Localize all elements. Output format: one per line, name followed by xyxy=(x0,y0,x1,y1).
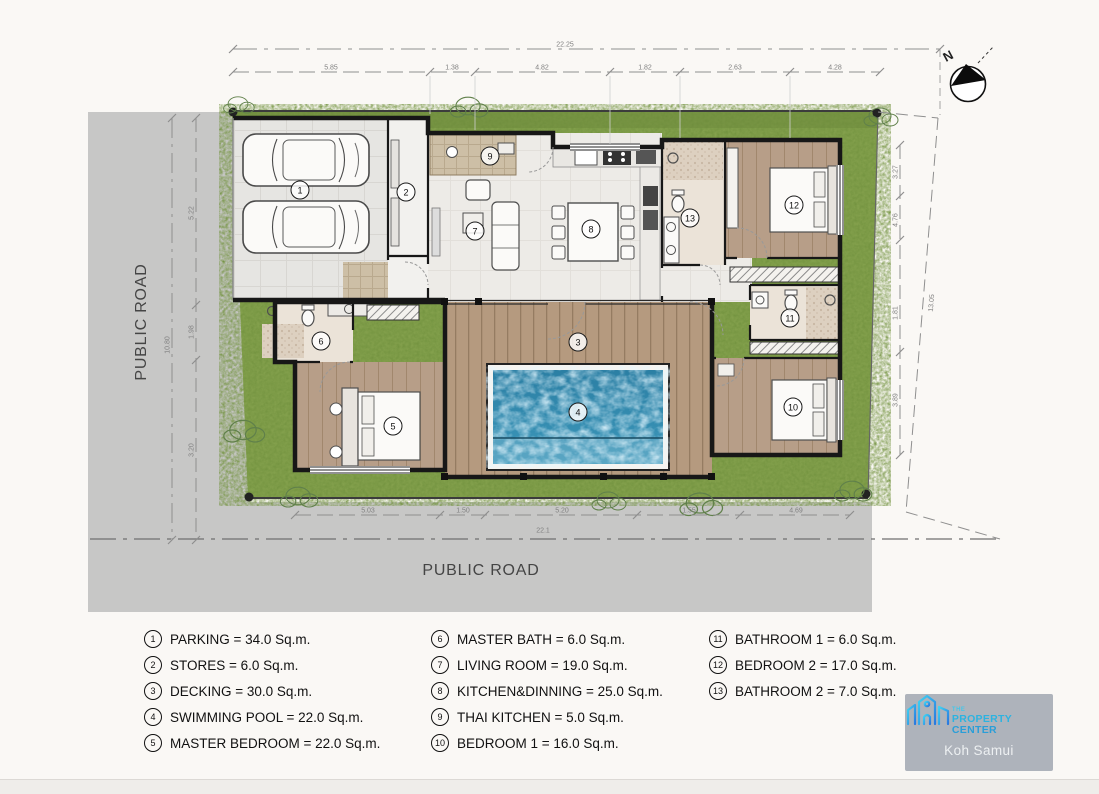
property-center-logo: THE PROPERTY CENTER Koh Samui xyxy=(905,694,1053,771)
dim-left-total: 10.80 xyxy=(165,336,172,354)
property-center-house-icon xyxy=(905,694,951,726)
legend-item: 1PARKING = 34.0 Sq.m. xyxy=(144,629,380,649)
room-marker-swimming-pool: 4 xyxy=(569,403,588,422)
legend-item: 10BEDROOM 1 = 16.0 Sq.m. xyxy=(431,733,663,753)
legend-label: BATHROOM 2 = 7.0 Sq.m. xyxy=(735,684,896,699)
legend-label: MASTER BATH = 6.0 Sq.m. xyxy=(457,632,625,647)
legend-number: 7 xyxy=(431,656,449,674)
room-marker-thai-kitchen: 9 xyxy=(481,147,500,166)
legend-number: 3 xyxy=(144,682,162,700)
dim-left-seg-3: 3.20 xyxy=(189,443,196,457)
legend-item: 2STORES = 6.0 Sq.m. xyxy=(144,655,380,675)
room-marker-living-room: 7 xyxy=(466,222,485,241)
room-marker-master-bedroom: 5 xyxy=(384,417,403,436)
room-marker-bedroom-1: 10 xyxy=(784,398,803,417)
legend-number: 8 xyxy=(431,682,449,700)
dim-top-seg-2: 1.38 xyxy=(445,65,459,72)
room-marker-decking: 3 xyxy=(569,333,588,352)
legend-item: 11BATHROOM 1 = 6.0 Sq.m. xyxy=(709,629,897,649)
room-marker-bedroom-2: 12 xyxy=(785,196,804,215)
legend-number: 4 xyxy=(144,708,162,726)
room-marker-master-bath: 6 xyxy=(312,332,331,351)
legend-number: 6 xyxy=(431,630,449,648)
logo-center: CENTER xyxy=(952,725,1012,736)
north-arrow xyxy=(951,46,995,102)
legend-number: 10 xyxy=(431,734,449,752)
legend-item: 7LIVING ROOM = 19.0 Sq.m. xyxy=(431,655,663,675)
legend-item: 3DECKING = 30.0 Sq.m. xyxy=(144,681,380,701)
legend-label: LIVING ROOM = 19.0 Sq.m. xyxy=(457,658,628,673)
legend-item: 4SWIMMING POOL = 22.0 Sq.m. xyxy=(144,707,380,727)
dim-right-total: 13.05 xyxy=(928,294,936,312)
legend-label: THAI KITCHEN = 5.0 Sq.m. xyxy=(457,710,624,725)
legend-item: 5MASTER BEDROOM = 22.0 Sq.m. xyxy=(144,733,380,753)
legend-label: BEDROOM 2 = 17.0 Sq.m. xyxy=(735,658,897,673)
dim-top-seg-5: 2.63 xyxy=(728,65,742,72)
legend-number: 2 xyxy=(144,656,162,674)
legend-item: 9THAI KITCHEN = 5.0 Sq.m. xyxy=(431,707,663,727)
legend-label: STORES = 6.0 Sq.m. xyxy=(170,658,298,673)
legend-item: 13BATHROOM 2 = 7.0 Sq.m. xyxy=(709,681,897,701)
bottom-divider xyxy=(0,779,1099,794)
room-marker-bathroom-1: 11 xyxy=(781,309,800,328)
dim-bottom-seg-4: 1.55 xyxy=(682,508,696,515)
legend-label: PARKING = 34.0 Sq.m. xyxy=(170,632,310,647)
dim-bottom-total: 22.1 xyxy=(536,528,550,535)
legend-column-3: 11BATHROOM 1 = 6.0 Sq.m. 12BEDROOM 2 = 1… xyxy=(709,629,897,701)
site-plan-page: PUBLIC ROAD PUBLIC ROAD N 22.25 5.85 1.3… xyxy=(0,0,1099,794)
legend-column-1: 1PARKING = 34.0 Sq.m. 2STORES = 6.0 Sq.m… xyxy=(144,629,380,753)
dim-bottom-seg-2: 1.50 xyxy=(456,508,470,515)
public-road-label-left: PUBLIC ROAD xyxy=(133,263,151,380)
dim-right-seg-2: 4.76 xyxy=(893,213,900,227)
legend-label: MASTER BEDROOM = 22.0 Sq.m. xyxy=(170,736,380,751)
dim-right-seg-1: 3.27 xyxy=(893,165,900,179)
legend-number: 12 xyxy=(709,656,727,674)
logo-property: PROPERTY xyxy=(952,714,1012,725)
dim-top-seg-1: 5.85 xyxy=(324,65,338,72)
legend-label: SWIMMING POOL = 22.0 Sq.m. xyxy=(170,710,363,725)
legend-number: 1 xyxy=(144,630,162,648)
dim-bottom-seg-5: 4.69 xyxy=(789,508,803,515)
dim-right-seg-4: 3.89 xyxy=(893,393,900,407)
legend-column-2: 6MASTER BATH = 6.0 Sq.m. 7LIVING ROOM = … xyxy=(431,629,663,753)
room-marker-parking: 1 xyxy=(291,181,310,200)
legend-label: BEDROOM 1 = 16.0 Sq.m. xyxy=(457,736,619,751)
legend-item: 8KITCHEN&DINNING = 25.0 Sq.m. xyxy=(431,681,663,701)
dim-top-seg-6: 4.28 xyxy=(828,65,842,72)
legend-number: 13 xyxy=(709,682,727,700)
legend-item: 12BEDROOM 2 = 17.0 Sq.m. xyxy=(709,655,897,675)
legend-label: DECKING = 30.0 Sq.m. xyxy=(170,684,312,699)
dim-top-seg-3: 4.82 xyxy=(535,65,549,72)
dim-top-total: 22.25 xyxy=(556,42,574,49)
dim-bottom-seg-3: 5.20 xyxy=(555,508,569,515)
legend-label: BATHROOM 1 = 6.0 Sq.m. xyxy=(735,632,896,647)
dim-bottom-seg-1: 5.03 xyxy=(361,508,375,515)
room-marker-kitchen-dining: 8 xyxy=(582,220,601,239)
room-marker-bathroom-2: 13 xyxy=(681,209,700,228)
dim-left-seg-2: 1.98 xyxy=(189,325,196,339)
legend-number: 5 xyxy=(144,734,162,752)
legend-item: 6MASTER BATH = 6.0 Sq.m. xyxy=(431,629,663,649)
dim-right-seg-3: 1.81 xyxy=(893,306,900,320)
dim-top-seg-4: 1.82 xyxy=(638,65,652,72)
legend-number: 11 xyxy=(709,630,727,648)
room-marker-stores: 2 xyxy=(397,183,416,202)
logo-location: Koh Samui xyxy=(944,743,1014,758)
public-road-label-bottom: PUBLIC ROAD xyxy=(422,562,539,580)
legend-label: KITCHEN&DINNING = 25.0 Sq.m. xyxy=(457,684,663,699)
legend-number: 9 xyxy=(431,708,449,726)
dim-left-seg-1: 5.22 xyxy=(189,206,196,220)
